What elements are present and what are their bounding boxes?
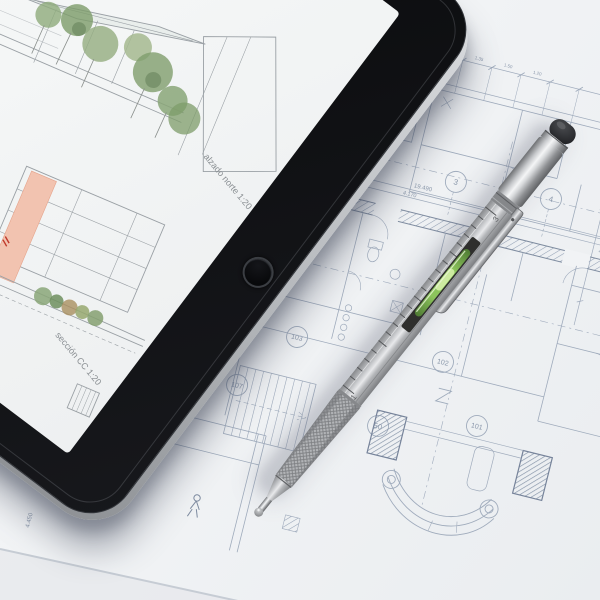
product-photo-scene: { "scene": { "description": "Tablet with…	[0, 0, 600, 600]
elevation-label: alzado norte 1:20	[202, 152, 254, 212]
section-drawing	[0, 137, 209, 422]
person-icon	[187, 494, 202, 519]
dimension-label: 4.450	[25, 512, 35, 529]
entry-steps	[352, 410, 553, 556]
circled-ref: 101	[470, 422, 483, 432]
circled-ref: 3	[453, 177, 460, 187]
chain-dim: 1.20	[532, 70, 542, 77]
circled-ref: 103	[290, 333, 303, 343]
paper-sheet-edge	[0, 549, 238, 600]
dimension-label: 19.490	[413, 183, 433, 193]
hatched-block	[282, 515, 300, 532]
chain-dim: 1.35	[474, 55, 484, 62]
home-button[interactable]	[236, 251, 279, 294]
circled-ref: 102	[436, 358, 449, 368]
section-label: sección CC 1:20	[53, 330, 103, 387]
chain-dim: 1.50	[503, 62, 513, 69]
circled-ref: 4	[548, 195, 555, 205]
radiator-symbol	[67, 384, 99, 417]
dimension-label: 4.170	[402, 190, 417, 199]
